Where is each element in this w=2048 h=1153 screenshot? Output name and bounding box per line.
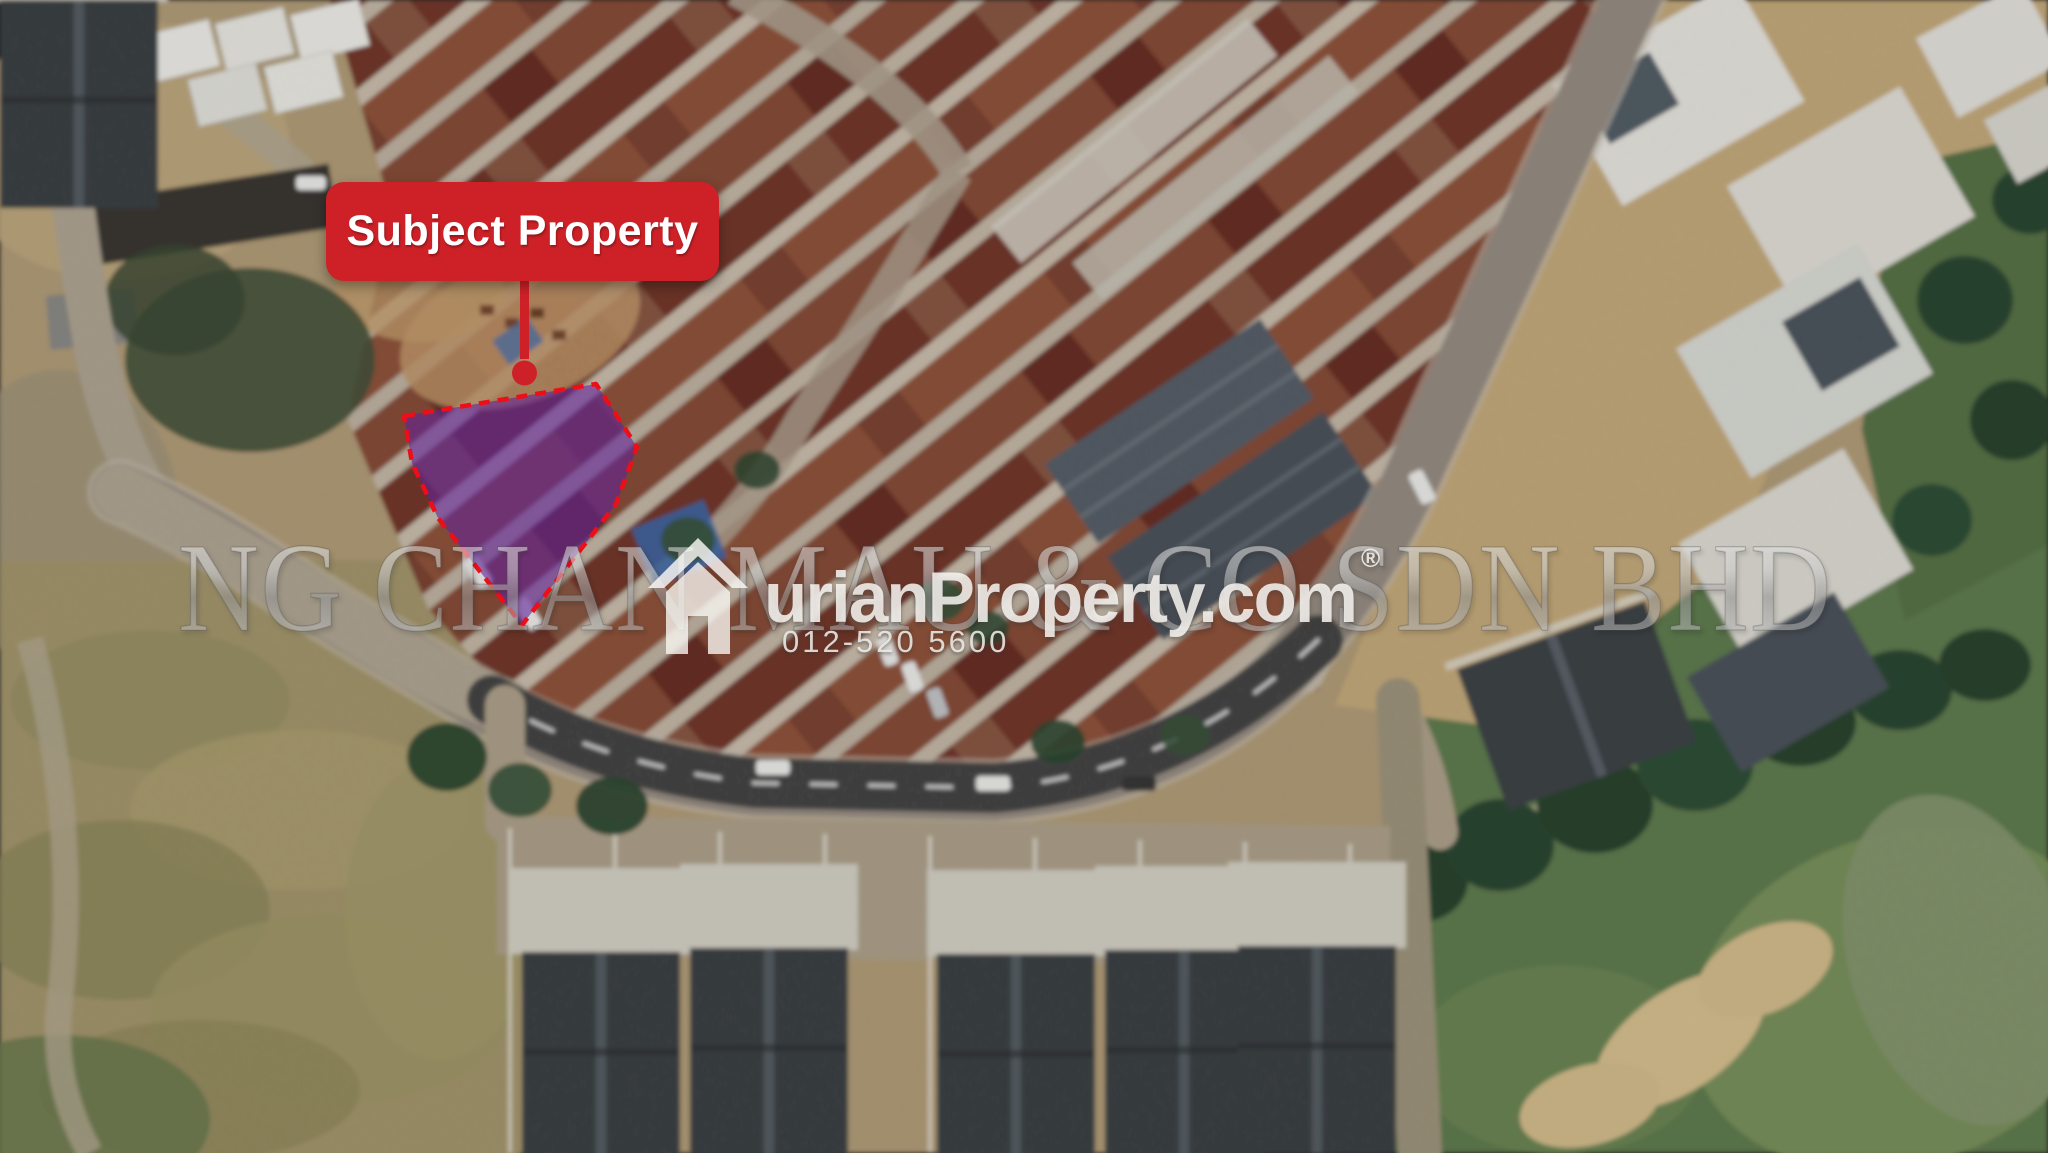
subject-property-label-text: Subject Property <box>346 207 698 256</box>
property-map-screenshot: NG CHAN MAU & CO SDN BHD Subject Propert… <box>0 0 2048 1153</box>
registered-mark-icon: ® <box>1361 543 1380 573</box>
pointer-dot-icon <box>512 361 537 386</box>
portal-phone: 012-520 5600 <box>782 624 1009 660</box>
durianproperty-watermark: urianProperty.com® 012-520 5600 <box>640 532 1480 682</box>
house-icon <box>646 536 750 658</box>
subject-property-label: Subject Property <box>326 182 719 281</box>
